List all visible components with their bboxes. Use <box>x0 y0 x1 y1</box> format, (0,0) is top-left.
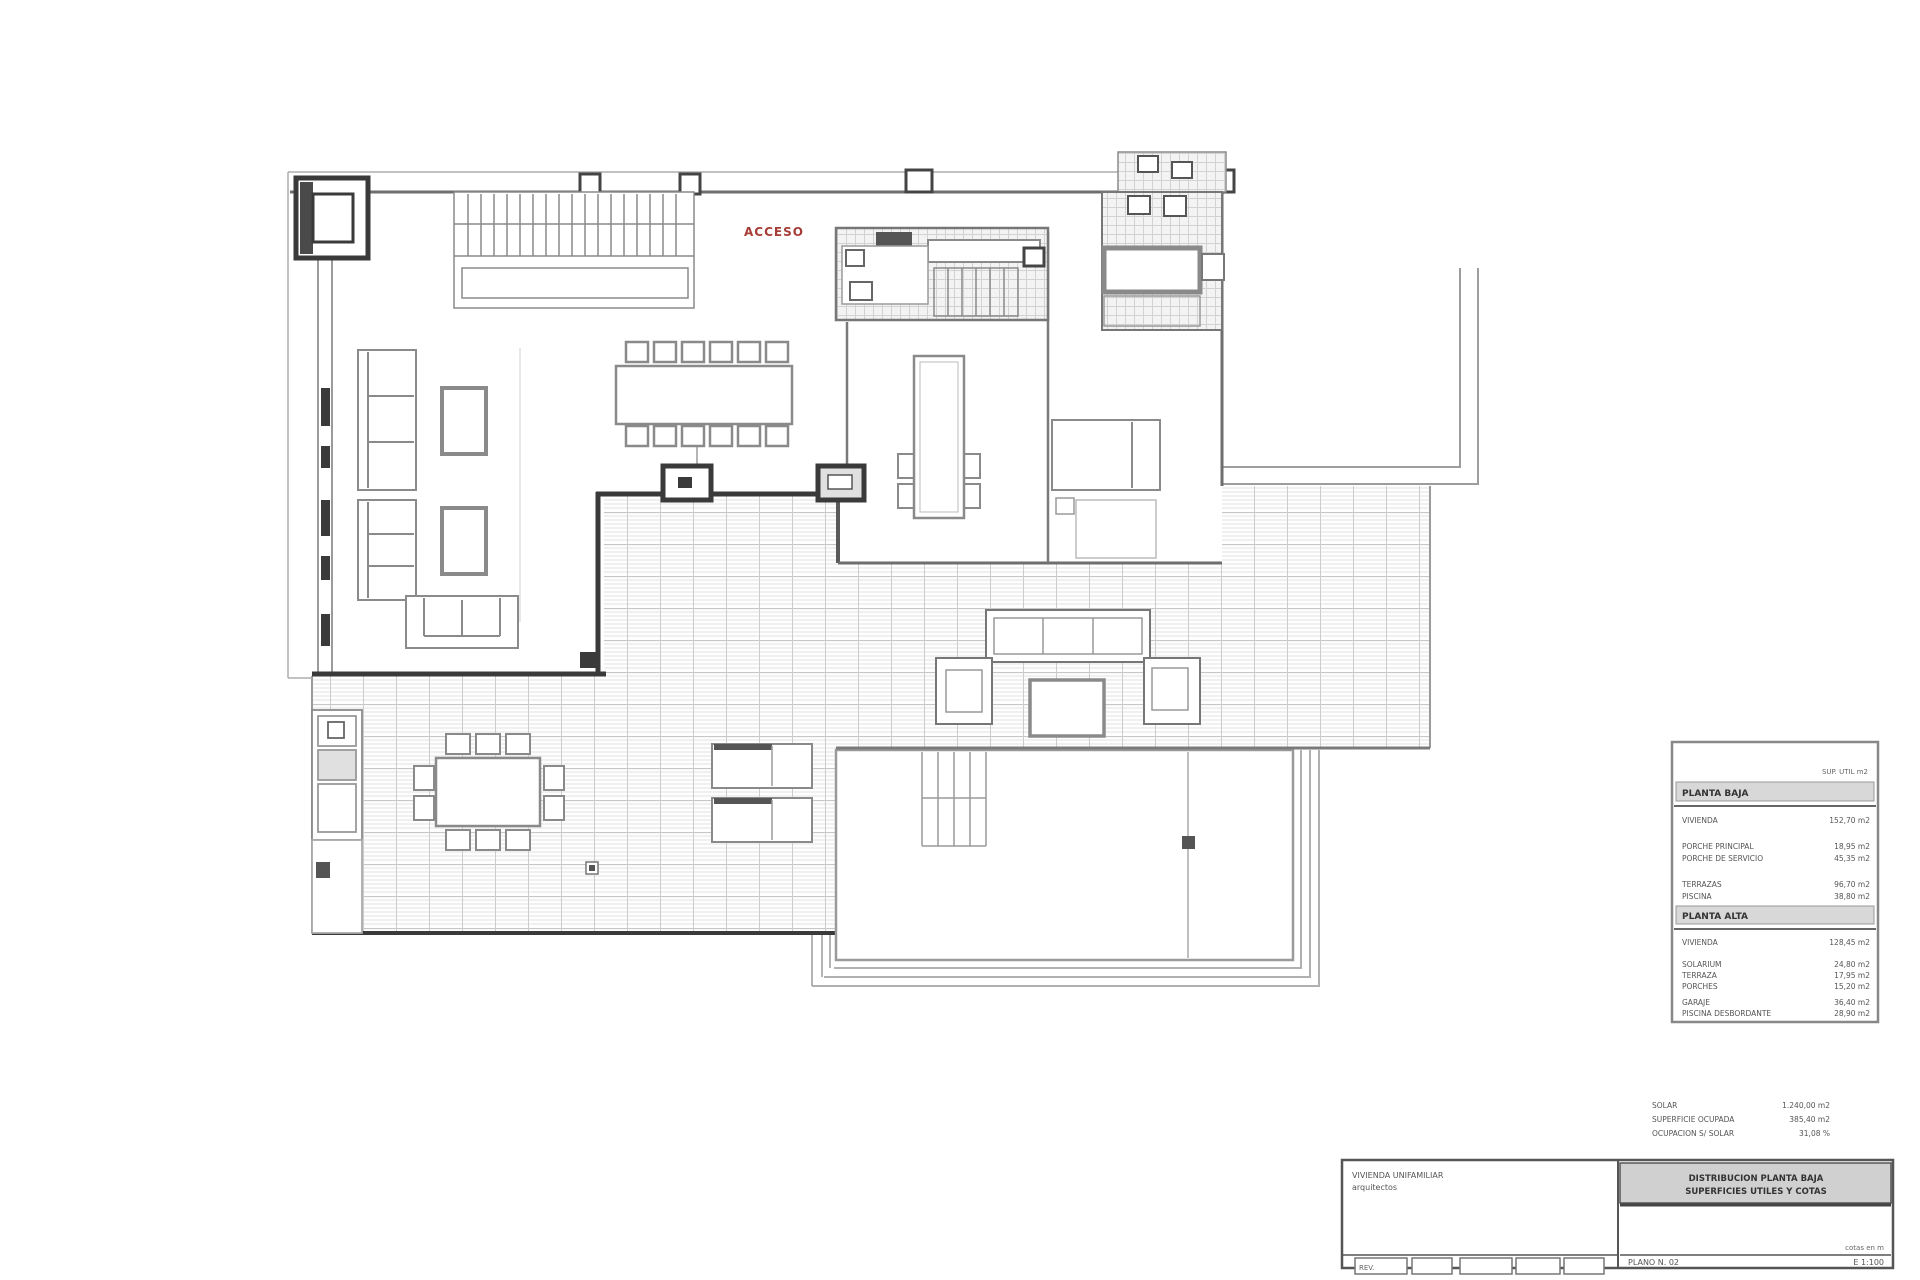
legend-row-label: VIVIENDA <box>1682 816 1719 825</box>
legend-row-value: 38,80 m2 <box>1834 892 1870 901</box>
legend-row-value: 17,95 m2 <box>1834 971 1870 980</box>
summary-value: 385,40 m2 <box>1789 1115 1830 1124</box>
legend-row-label: GARAJE <box>1682 998 1710 1007</box>
floor-plan-sheet: ACCESO <box>0 0 1920 1280</box>
legend-row-value: 15,20 m2 <box>1834 982 1870 991</box>
nightstand <box>1056 498 1074 514</box>
legend-row-value: 18,95 m2 <box>1834 842 1870 851</box>
outdoor-table <box>436 758 540 826</box>
sheet-subtitle: SUPERFICIES UTILES Y COTAS <box>1685 1187 1826 1197</box>
summary-label: SUPERFICIE OCUPADA <box>1652 1115 1735 1124</box>
revision-box-label: REV. <box>1359 1264 1374 1272</box>
legend-row-value: 152,70 m2 <box>1829 816 1870 825</box>
legend-row-label: VIVIENDA <box>1682 938 1719 947</box>
kitchen-island <box>898 356 980 518</box>
rug <box>1076 500 1156 558</box>
sofa-horizontal <box>406 596 518 648</box>
area-legend-table: SUP. UTIL m2 PLANTA BAJA VIVIENDA 152,70… <box>1672 742 1878 1022</box>
summary-value: 1.240,00 m2 <box>1782 1101 1830 1110</box>
sheet-scale: E 1:100 <box>1853 1258 1884 1267</box>
sheet-number: PLANO N. 02 <box>1628 1258 1679 1267</box>
outdoor-sofa <box>986 610 1150 662</box>
legend-row-value: 24,80 m2 <box>1834 960 1870 969</box>
coffee-table <box>442 508 486 574</box>
pool-drain <box>1182 836 1195 849</box>
drain-marker <box>586 862 598 874</box>
corner-column <box>580 652 598 668</box>
legend-row-label: PISCINA DESBORDANTE <box>1682 1009 1771 1018</box>
shower <box>934 268 1018 316</box>
bidet <box>850 282 872 300</box>
plan-red-label: ACCESO <box>744 225 804 239</box>
legend-row-label: PORCHES <box>1682 982 1718 991</box>
bathroom-center <box>836 228 1048 320</box>
lounge-table <box>1030 680 1104 736</box>
dining-set <box>616 342 792 446</box>
summary-value: 31,08 % <box>1799 1129 1830 1138</box>
revision-boxes <box>1355 1258 1604 1274</box>
summary-label: SOLAR <box>1652 1101 1677 1110</box>
armchair-right <box>1144 658 1200 724</box>
project-author: arquitectos <box>1352 1183 1397 1192</box>
utility-strip <box>1118 152 1226 192</box>
column <box>1024 248 1044 266</box>
site-summary-block: SOLAR 1.240,00 m2 SUPERFICIE OCUPADA 385… <box>1652 1101 1830 1138</box>
units-note: cotas en m <box>1845 1244 1884 1252</box>
legend-row-label: TERRAZA <box>1681 971 1718 980</box>
sofa-vertical-1 <box>358 350 416 490</box>
legend-row-label: SOLARIUM <box>1682 960 1722 969</box>
bed <box>1052 420 1160 490</box>
legend-row-value: 128,45 m2 <box>1829 938 1870 947</box>
window <box>1202 254 1224 280</box>
bathtub <box>1104 248 1200 292</box>
sink <box>1128 196 1150 214</box>
legend-row-label: TERRAZAS <box>1681 880 1722 889</box>
armchair-left <box>936 658 992 724</box>
legend-note: SUP. UTIL m2 <box>1822 768 1868 776</box>
legend-row-value: 36,40 m2 <box>1834 998 1870 1007</box>
dining-table <box>616 366 792 424</box>
pool <box>812 748 1430 986</box>
legend-row-value: 45,35 m2 <box>1834 854 1870 863</box>
legend-section-header: PLANTA BAJA <box>1682 789 1749 799</box>
staircase <box>454 192 694 308</box>
bathroom-top-right <box>1102 192 1224 330</box>
bedroom <box>1052 420 1160 558</box>
sink <box>1164 196 1186 216</box>
plot-edge-lines <box>1222 268 1478 484</box>
title-block: VIVIENDA UNIFAMILIAR arquitectos REV. DI… <box>1342 1160 1893 1274</box>
sheet-title: DISTRIBUCION PLANTA BAJA <box>1689 1174 1824 1184</box>
summary-label: OCUPACION S/ SOLAR <box>1652 1129 1734 1138</box>
legend-row-label: PORCHE PRINCIPAL <box>1682 842 1754 851</box>
outdoor-kitchen <box>312 710 362 933</box>
project-name: VIVIENDA UNIFAMILIAR <box>1352 1171 1444 1180</box>
coffee-table <box>442 388 486 454</box>
legend-row-value: 96,70 m2 <box>1834 880 1870 889</box>
toilet <box>846 250 864 266</box>
legend-row-label: PORCHE DE SERVICIO <box>1682 854 1763 863</box>
legend-row-value: 28,90 m2 <box>1834 1009 1870 1018</box>
sofa-vertical-2 <box>358 500 416 600</box>
legend-section-header: PLANTA ALTA <box>1682 912 1748 922</box>
fireplace-block <box>296 178 368 258</box>
living-room <box>358 350 518 648</box>
legend-row-label: PISCINA <box>1682 892 1713 901</box>
terrace-steps-down <box>812 935 830 986</box>
